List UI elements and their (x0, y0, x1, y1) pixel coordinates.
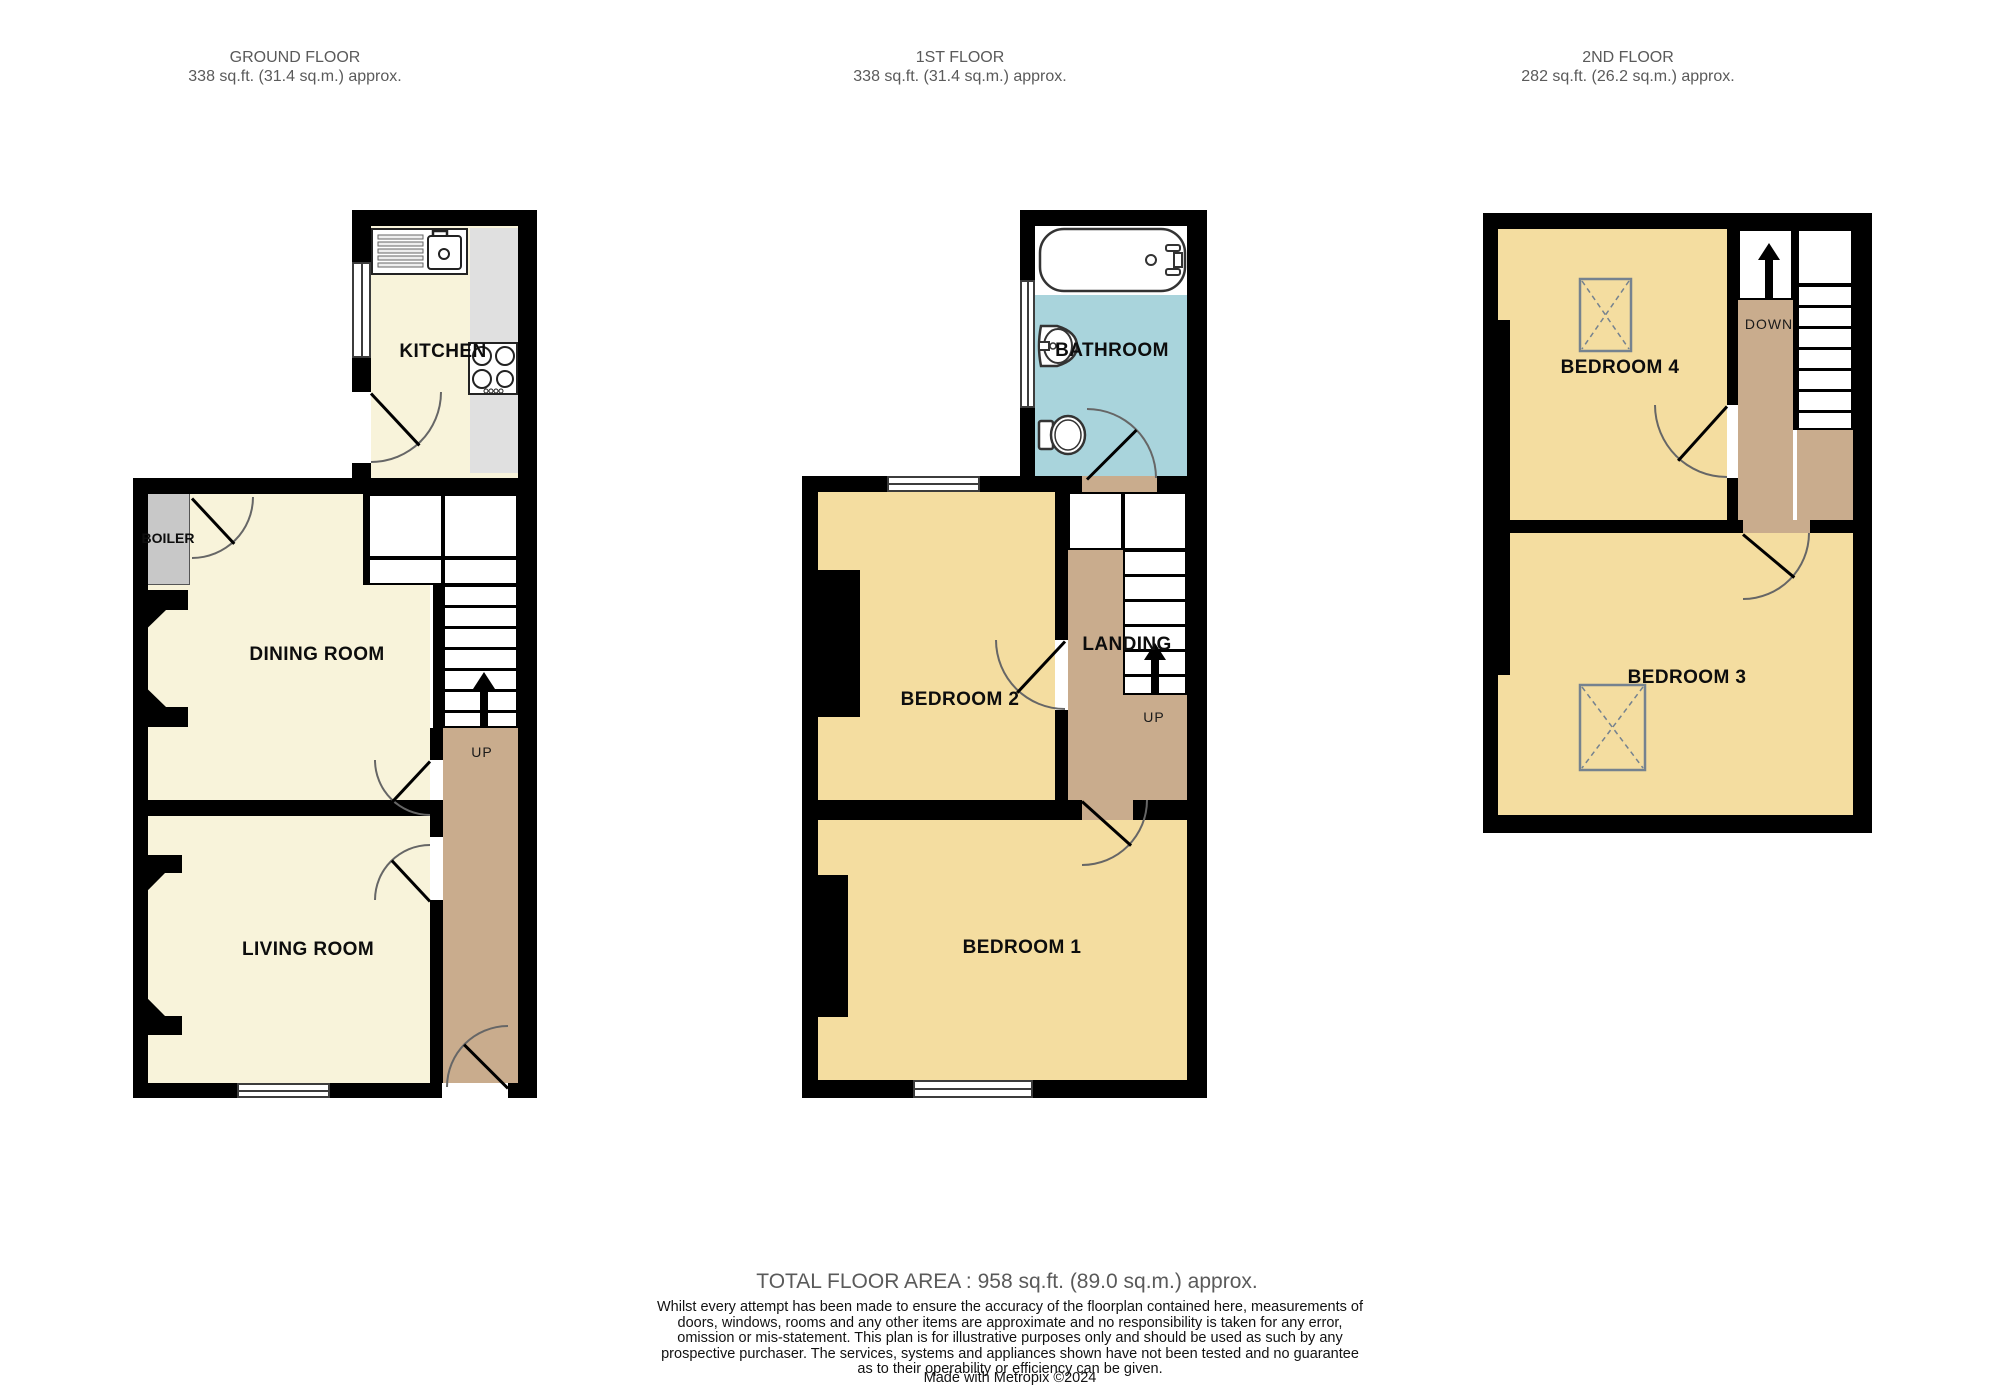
wall (802, 476, 818, 1098)
ground-floor-plan: KITCHEN BOILER DINING ROOM LIVING ROOM U… (130, 210, 550, 1110)
stairwell-void (368, 558, 443, 585)
living-alcove (148, 873, 182, 1016)
kitchen-sink-icon (371, 228, 468, 275)
bedroom1-chimney-breast (818, 875, 848, 1017)
second-floor-header: 2ND FLOOR 282 sq.ft. (26.2 sq.m.) approx… (1428, 48, 1828, 86)
credit-text: Made with Metropix ©2024 (655, 1370, 1365, 1386)
landing-label: LANDING (1082, 634, 1171, 656)
wall (802, 1080, 913, 1098)
landing-floor (1068, 550, 1123, 800)
down-arrow-icon (1765, 259, 1773, 300)
first-floor-header: 1ST FLOOR 338 sq.ft. (31.4 sq.m.) approx… (760, 48, 1160, 86)
wall (352, 210, 371, 262)
kitchen-window (352, 262, 371, 358)
up-arrow-icon (480, 688, 488, 728)
stairwell-void (443, 558, 518, 585)
ground-floor-header: GROUND FLOOR 338 sq.ft. (31.4 sq.m.) app… (95, 48, 495, 86)
living-room-window (237, 1083, 330, 1098)
total-floor-area: TOTAL FLOOR AREA : 958 sq.ft. (89.0 sq.m… (607, 1270, 1407, 1294)
staircase-treads (1797, 285, 1853, 430)
landing-floor (1797, 430, 1853, 520)
bedroom2-window (887, 476, 980, 492)
bathroom-label: BATHROOM (1055, 340, 1169, 362)
wall (1055, 710, 1068, 800)
wall (1483, 213, 1872, 229)
down-arrow-icon (1758, 243, 1780, 260)
wall (1020, 210, 1035, 280)
wall (1483, 815, 1872, 833)
wall (1853, 213, 1872, 833)
wall (133, 1083, 237, 1098)
wall (352, 210, 537, 226)
wall (330, 1083, 442, 1098)
bedroom1-window (913, 1080, 1033, 1098)
stairwell-void (1068, 492, 1123, 550)
wall (1033, 1080, 1205, 1098)
bedroom4-label: BEDROOM 4 (1561, 357, 1680, 379)
floorplan-page: GROUND FLOOR 338 sq.ft. (31.4 sq.m.) app… (0, 0, 2000, 1389)
bathtub-icon (1038, 227, 1187, 293)
wall (1055, 492, 1068, 640)
wall (430, 728, 443, 760)
wall (430, 900, 443, 1083)
stairs-up-label: UP (471, 744, 492, 760)
up-arrow-icon (1151, 659, 1159, 694)
wall (1020, 210, 1207, 226)
wall (133, 478, 518, 494)
second-floor-title: 2ND FLOOR (1428, 48, 1828, 67)
dining-alcove (148, 610, 188, 707)
wall (1727, 229, 1738, 405)
landing-floor (1738, 300, 1793, 520)
wall (1157, 476, 1187, 492)
party-wall-chimney-breast (1483, 320, 1510, 675)
ground-floor-area: 338 sq.ft. (31.4 sq.m.) approx. (95, 67, 495, 86)
stair-divider-wall (1793, 229, 1797, 430)
toilet-icon (1037, 413, 1087, 457)
wall (430, 808, 443, 837)
bedroom2-chimney-breast (818, 570, 860, 717)
up-arrow-icon (473, 672, 495, 689)
dining-room-label: DINING ROOM (249, 644, 384, 666)
bedroom3-label: BEDROOM 3 (1628, 667, 1747, 689)
kitchen-label: KITCHEN (399, 341, 486, 363)
stairs-up-label: UP (1143, 709, 1164, 725)
door-threshold (1743, 520, 1810, 533)
door-threshold (1082, 476, 1157, 492)
wall (1483, 520, 1743, 533)
bedroom2-label: BEDROOM 2 (901, 689, 1020, 711)
second-floor-area: 282 sq.ft. (26.2 sq.m.) approx. (1428, 67, 1828, 86)
second-floor-plan: BEDROOM 4 BEDROOM 3 DOWN (1480, 210, 1880, 850)
disclaimer-text: Whilst every attempt has been made to en… (655, 1300, 1365, 1378)
first-floor-plan: BATHROOM BEDROOM 2 LANDING BEDROOM 1 UP (800, 210, 1220, 1110)
first-floor-area: 338 sq.ft. (31.4 sq.m.) approx. (760, 67, 1160, 86)
skylight-icon (1578, 683, 1647, 772)
living-room-label: LIVING ROOM (242, 939, 374, 961)
stair-banister-wall (433, 585, 443, 728)
wall (352, 358, 371, 392)
stairwell-void (368, 494, 443, 558)
stairwell-void (443, 494, 518, 558)
skylight-icon (1578, 277, 1633, 353)
wall (1810, 520, 1853, 533)
stairwell-void (1123, 492, 1187, 550)
bathroom-window (1020, 280, 1035, 408)
wall (802, 800, 1082, 820)
first-floor-title: 1ST FLOOR (760, 48, 1160, 67)
stairs-down-label: DOWN (1745, 316, 1793, 332)
wall (508, 1083, 537, 1098)
wall (1187, 210, 1207, 1098)
ground-floor-title: GROUND FLOOR (95, 48, 495, 67)
bedroom1-label: BEDROOM 1 (963, 937, 1082, 959)
boiler-label: BOILER (142, 530, 195, 546)
wall (1727, 478, 1738, 520)
stairwell-void (1797, 229, 1853, 285)
wall (980, 476, 1082, 492)
wall (518, 210, 537, 1098)
